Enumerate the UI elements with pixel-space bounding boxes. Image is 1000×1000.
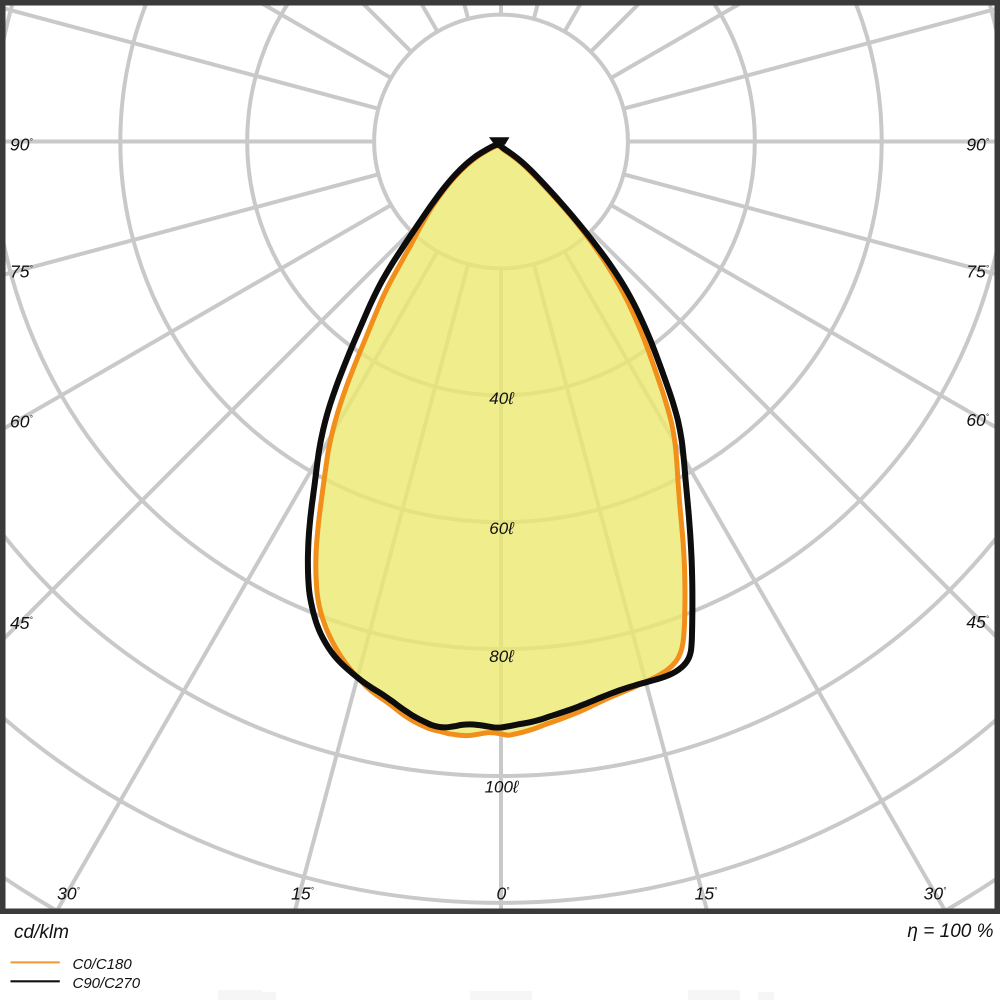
svg-text:60ℓ: 60ℓ	[489, 519, 514, 538]
svg-text:100ℓ: 100ℓ	[485, 778, 519, 797]
svg-text:C0/C180: C0/C180	[73, 956, 133, 973]
svg-text:C90/C270: C90/C270	[73, 975, 141, 992]
svg-text:η = 100 %: η = 100 %	[907, 921, 993, 942]
svg-text:80ℓ: 80ℓ	[489, 647, 514, 666]
svg-text:cd/klm: cd/klm	[14, 922, 69, 943]
svg-text:40ℓ: 40ℓ	[489, 389, 514, 408]
